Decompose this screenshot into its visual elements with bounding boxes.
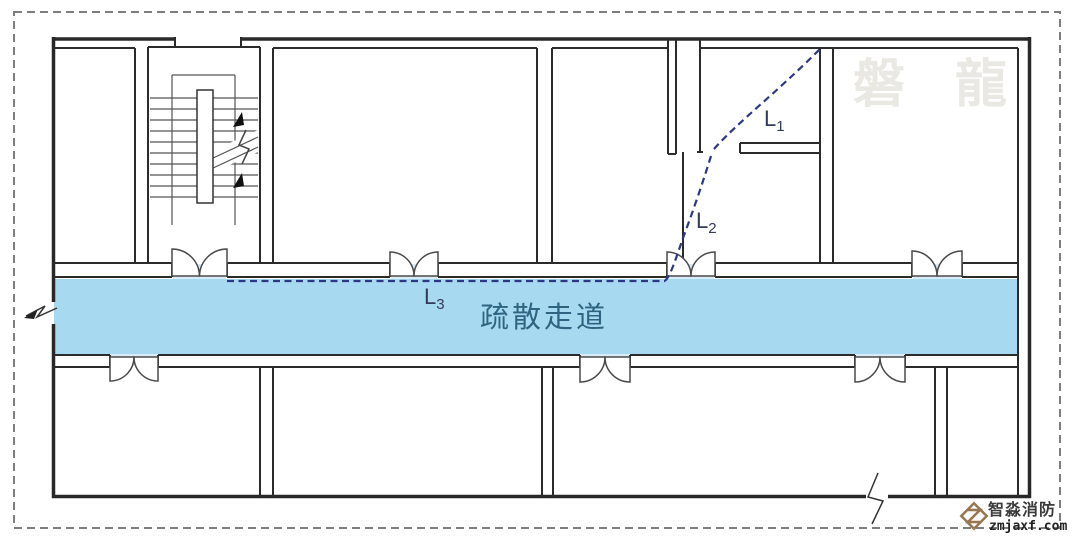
stair-break-mask — [210, 130, 258, 174]
floor-plan-figure: 磐 龍 — [0, 0, 1080, 537]
room-door-bottom-2 — [580, 357, 630, 382]
stair-stringer — [197, 90, 213, 203]
evacuation-path-l1 — [714, 49, 820, 149]
room-door-top-4 — [912, 251, 962, 276]
watermark-text: 磐 龍 — [853, 55, 1023, 115]
logo-company-name: 智淼消防 — [988, 500, 1056, 519]
logo-website: zmjaxf.com — [989, 519, 1067, 534]
bottom-wall-break — [868, 473, 883, 524]
stairwell — [150, 75, 258, 225]
stairwell-door — [172, 249, 227, 276]
label-l2: L2 — [696, 208, 717, 237]
evacuation-path — [227, 49, 820, 281]
room-door-bottom-1 — [110, 357, 158, 381]
corridor-continuation-break — [24, 306, 57, 319]
floor-plan-svg: 磐 龍 — [0, 0, 1080, 537]
label-l1: L1 — [764, 106, 785, 135]
room-door-bottom-3 — [855, 357, 905, 382]
corridor-label: 疏散走道 — [480, 300, 608, 334]
